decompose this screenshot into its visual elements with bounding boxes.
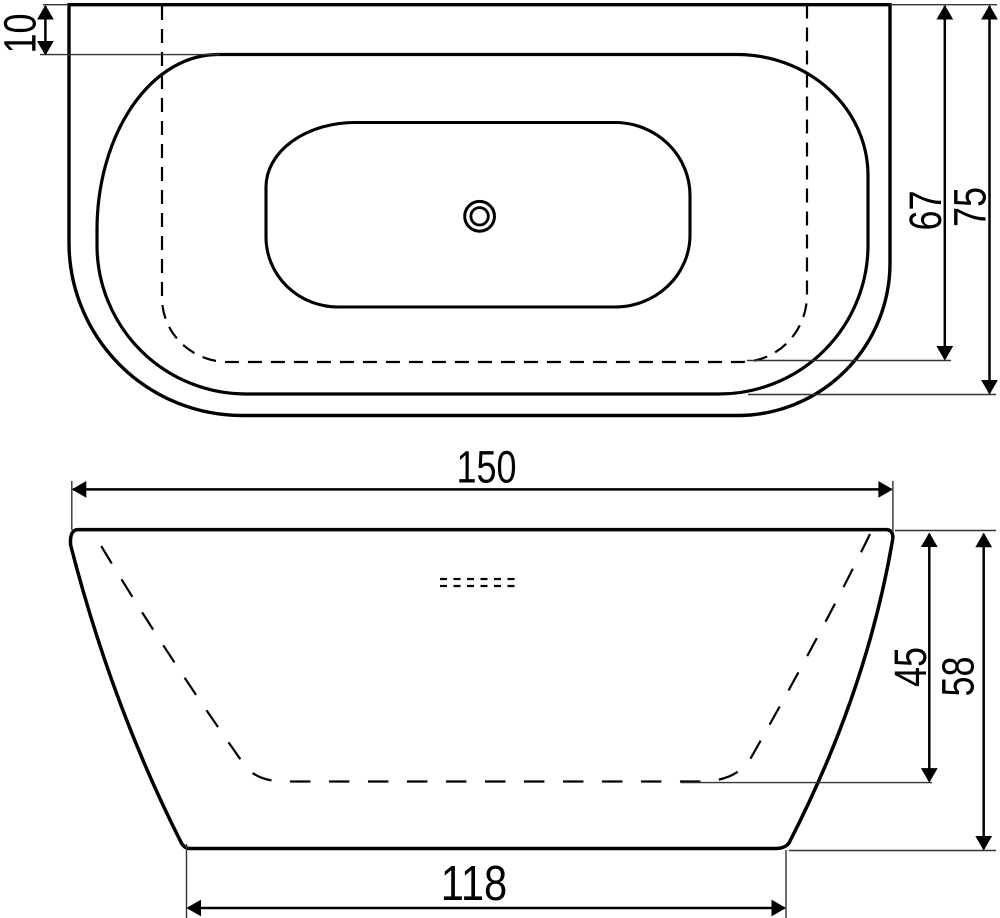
svg-text:45: 45 — [885, 647, 936, 687]
svg-text:75: 75 — [945, 187, 996, 227]
svg-text:58: 58 — [933, 656, 984, 696]
svg-text:118: 118 — [441, 856, 507, 911]
svg-text:150: 150 — [456, 442, 516, 493]
svg-text:10: 10 — [0, 13, 45, 53]
svg-text:67: 67 — [900, 190, 951, 230]
